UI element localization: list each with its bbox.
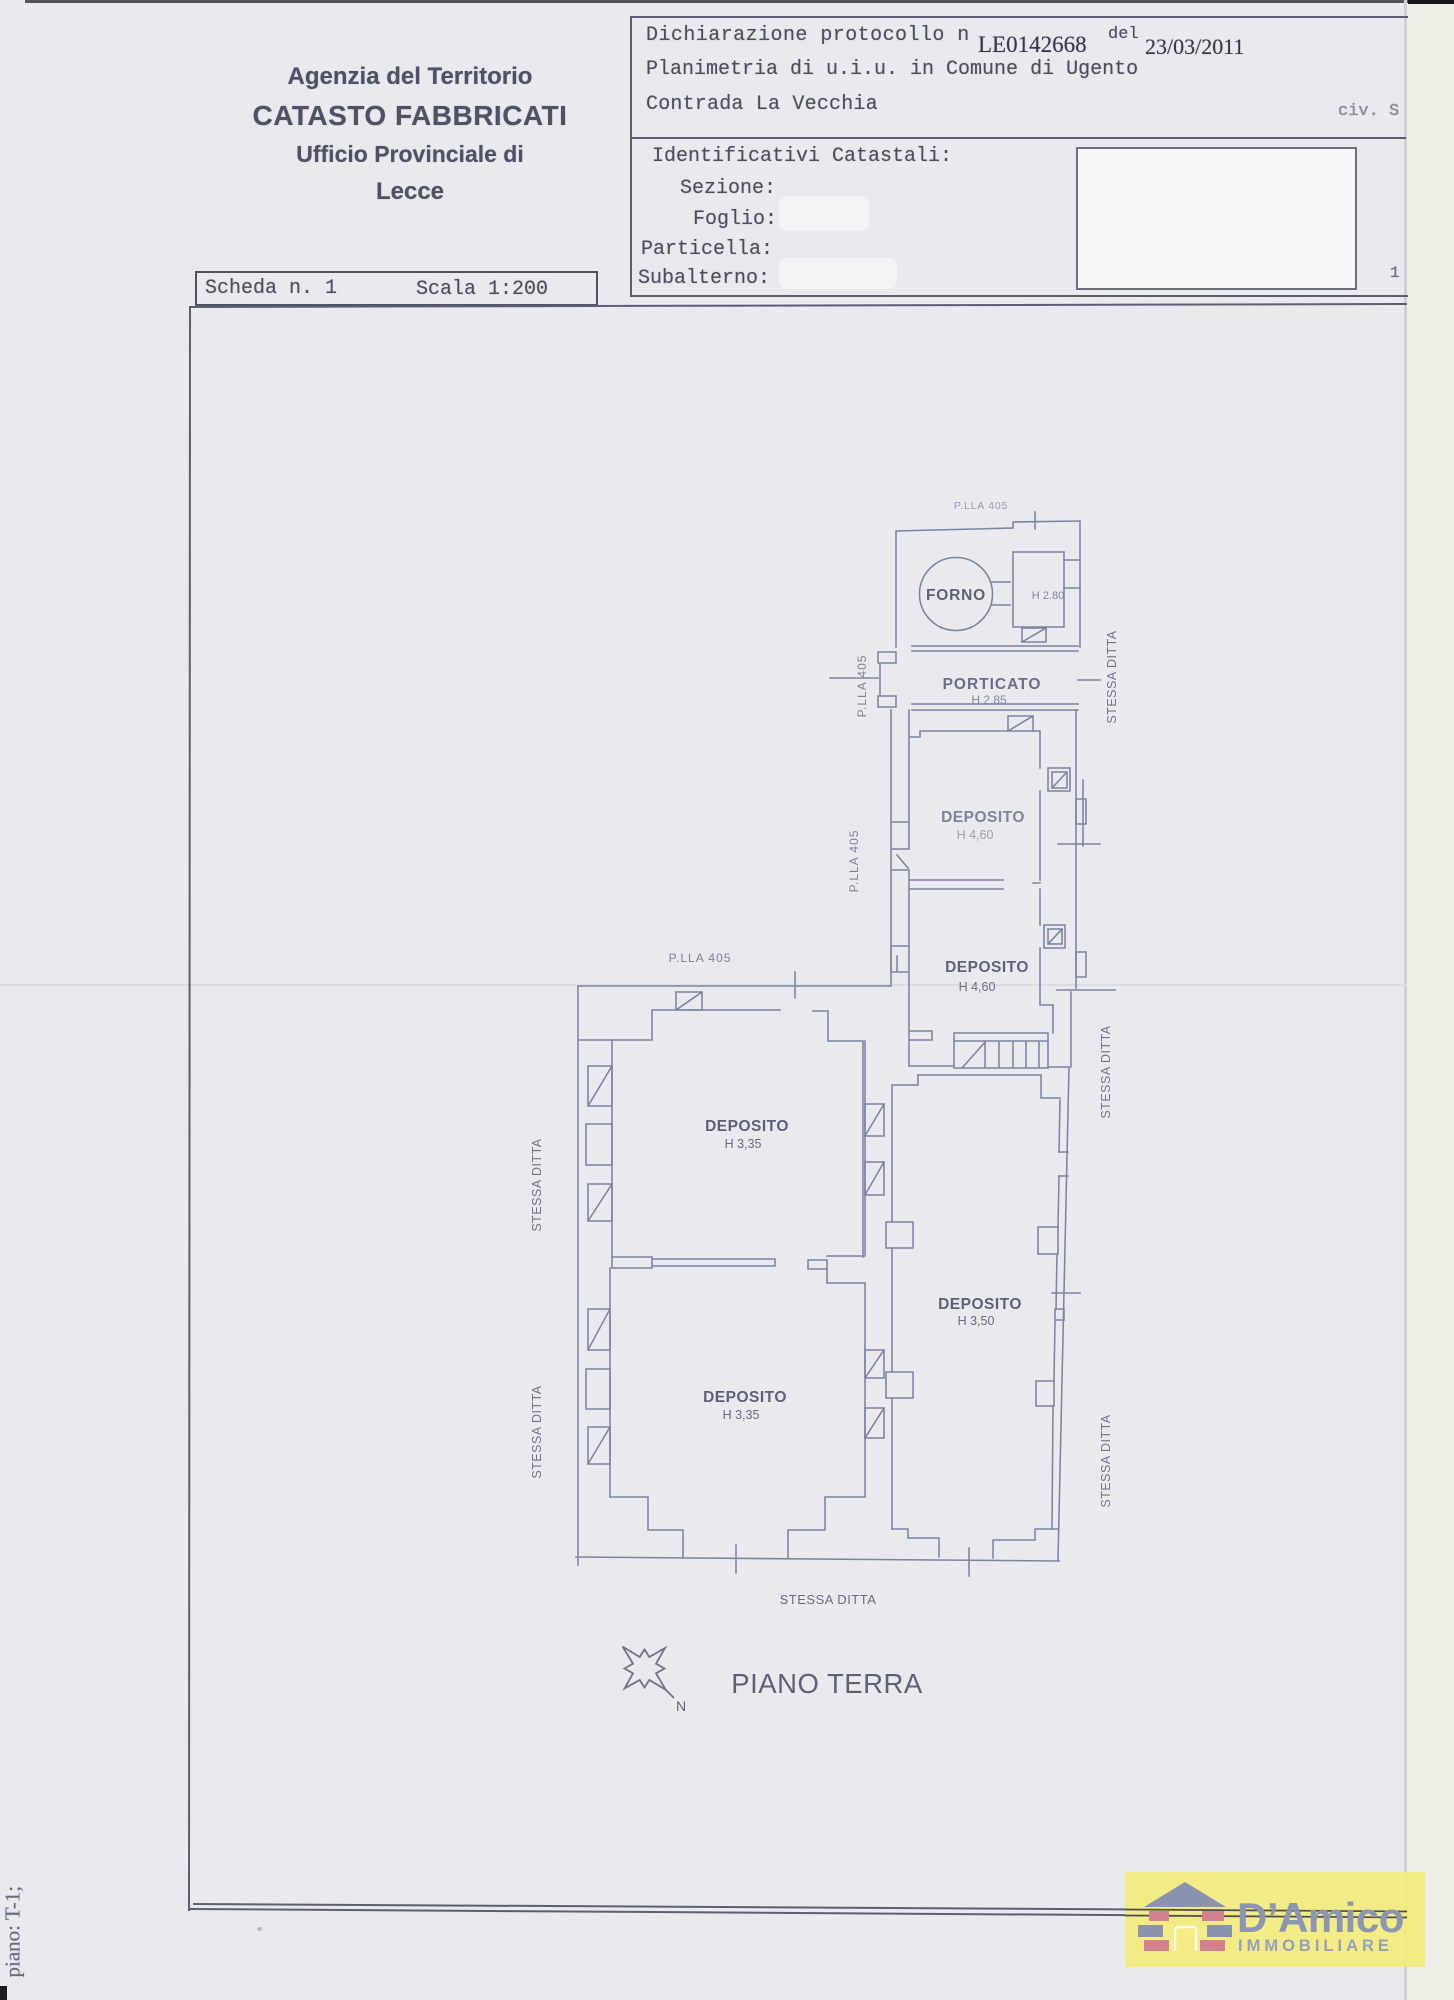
svg-text:H 3,50: H 3,50 xyxy=(958,1314,995,1328)
svg-text:STESSA DITTA: STESSA DITTA xyxy=(1099,1414,1113,1507)
svg-text:DEPOSITO: DEPOSITO xyxy=(705,1118,789,1135)
svg-text:P.LLA 405: P.LLA 405 xyxy=(669,951,732,965)
svg-text:STESSA DITTA: STESSA DITTA xyxy=(1105,630,1119,723)
svg-text:STESSA DITTA: STESSA DITTA xyxy=(530,1385,544,1478)
svg-text:STESSA DITTA: STESSA DITTA xyxy=(530,1138,544,1231)
svg-text:P.LLA 405: P.LLA 405 xyxy=(954,500,1008,512)
svg-text:H 3,35: H 3,35 xyxy=(725,1137,762,1151)
svg-text:P.LLA 405: P.LLA 405 xyxy=(847,830,861,893)
svg-text:DEPOSITO: DEPOSITO xyxy=(938,1296,1022,1313)
svg-text:PORTICATO: PORTICATO xyxy=(943,676,1042,693)
svg-text:P.LLA 405: P.LLA 405 xyxy=(855,655,869,718)
svg-text:H 3,35: H 3,35 xyxy=(723,1408,760,1422)
svg-text:DEPOSITO: DEPOSITO xyxy=(703,1389,787,1406)
svg-text:N: N xyxy=(676,1698,686,1714)
svg-text:H 4,60: H 4,60 xyxy=(957,828,994,842)
svg-text:DEPOSITO: DEPOSITO xyxy=(941,809,1025,826)
svg-text:H 2.85: H 2.85 xyxy=(971,693,1007,707)
svg-text:DEPOSITO: DEPOSITO xyxy=(945,959,1029,976)
svg-text:H 4,60: H 4,60 xyxy=(959,980,996,994)
svg-text:STESSA DITTA: STESSA DITTA xyxy=(1099,1025,1113,1118)
svg-text:PIANO TERRA: PIANO TERRA xyxy=(731,1668,923,1699)
svg-text:IMMOBILIARE: IMMOBILIARE xyxy=(1238,1937,1393,1955)
svg-text:STESSA DITTA: STESSA DITTA xyxy=(780,1592,877,1607)
svg-text:H 2.80: H 2.80 xyxy=(1032,590,1064,602)
svg-text:FORNO: FORNO xyxy=(926,587,986,604)
svg-text:D’Amico: D’Amico xyxy=(1237,1894,1404,1941)
